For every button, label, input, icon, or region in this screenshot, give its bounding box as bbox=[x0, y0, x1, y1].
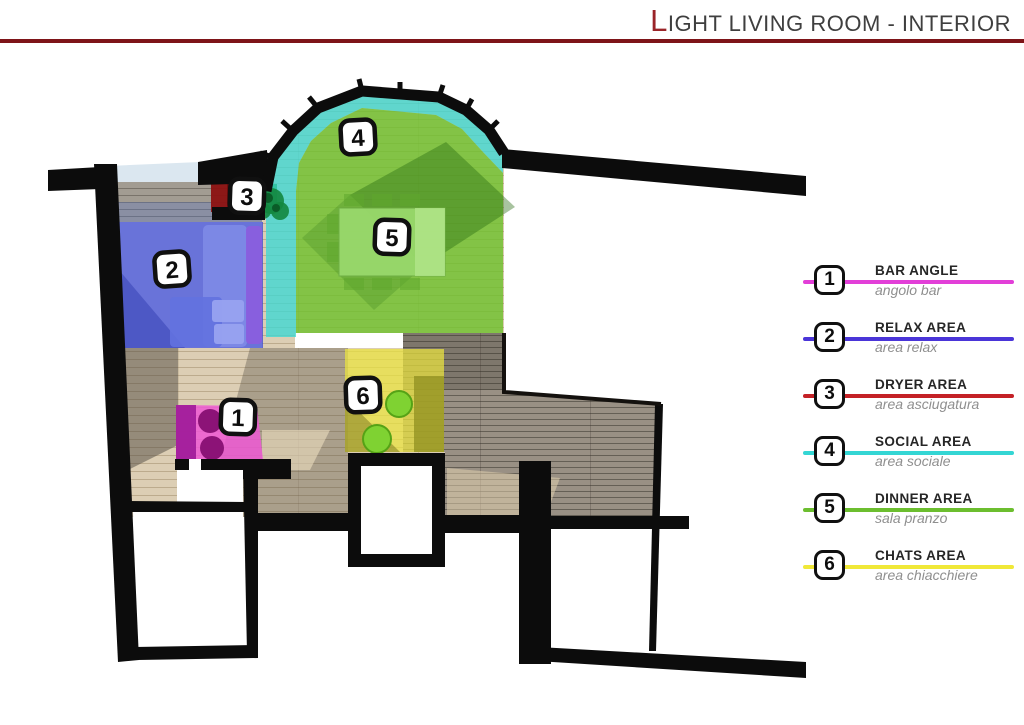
wall-segment bbox=[521, 646, 806, 678]
legend-sublabel: area sociale bbox=[875, 453, 1014, 469]
plan-badge-4: 4 bbox=[340, 119, 376, 155]
legend-badge: 2 bbox=[814, 322, 845, 352]
legend-sublabel: area relax bbox=[875, 339, 1014, 355]
wall-segment bbox=[502, 149, 806, 196]
svg-text:6: 6 bbox=[356, 383, 370, 410]
bar-stool bbox=[200, 436, 224, 460]
legend-item-dinner-area: 5 DINNER AREA sala pranzo bbox=[803, 490, 1014, 547]
legend-label: RELAX AREA bbox=[875, 320, 1014, 335]
bar-stool bbox=[198, 409, 222, 433]
legend-badge-num: 3 bbox=[824, 383, 835, 405]
wall-segment bbox=[443, 515, 525, 533]
legend-label: CHATS AREA bbox=[875, 548, 1014, 563]
legend-label: DINNER AREA bbox=[875, 491, 1014, 506]
legend-sublabel: area asciugatura bbox=[875, 396, 1014, 412]
legend-item-bar-angle: 1 BAR ANGLE angolo bar bbox=[803, 262, 1014, 319]
plan-badge-3: 3 bbox=[229, 178, 264, 213]
legend-item-chats-area: 6 CHATS AREA area chiacchiere bbox=[803, 547, 1014, 604]
pouf bbox=[363, 425, 391, 453]
svg-text:4: 4 bbox=[351, 125, 366, 153]
legend-badge: 3 bbox=[814, 379, 845, 409]
wall-segment bbox=[551, 516, 689, 529]
wall-segment bbox=[256, 513, 348, 531]
wall-segment bbox=[135, 645, 258, 660]
svg-text:5: 5 bbox=[385, 225, 399, 252]
legend-item-relax-area: 2 RELAX AREA area relax bbox=[803, 319, 1014, 376]
legend-label: DRYER AREA bbox=[875, 377, 1014, 392]
svg-text:2: 2 bbox=[164, 257, 179, 285]
plan-badge-1: 1 bbox=[220, 399, 255, 434]
wall-segment bbox=[48, 167, 100, 191]
legend-badge-num: 5 bbox=[824, 497, 835, 519]
pouf bbox=[386, 391, 412, 417]
wall-segment bbox=[519, 461, 551, 664]
plan-badge-2: 2 bbox=[154, 251, 190, 287]
wall-segment bbox=[243, 459, 258, 653]
sofa-arm bbox=[246, 226, 262, 344]
sofa-pillow bbox=[214, 324, 244, 344]
svg-text:1: 1 bbox=[231, 405, 245, 432]
legend-label: SOCIAL AREA bbox=[875, 434, 1014, 449]
plan-badge-5: 5 bbox=[374, 219, 409, 254]
legend-badge: 5 bbox=[814, 493, 845, 523]
legend-sublabel: angolo bar bbox=[875, 282, 1014, 298]
bench bbox=[414, 376, 444, 452]
legend-badge-num: 6 bbox=[824, 554, 835, 576]
legend-sublabel: area chiacchiere bbox=[875, 567, 1014, 583]
legend-badge-num: 4 bbox=[824, 440, 835, 462]
dining-table-highlight bbox=[415, 208, 445, 276]
svg-text:3: 3 bbox=[240, 184, 254, 211]
legend-item-social-area: 4 SOCIAL AREA area sociale bbox=[803, 433, 1014, 490]
sofa-pillow bbox=[212, 300, 244, 322]
stairwell-void bbox=[361, 466, 432, 554]
legend-badge: 4 bbox=[814, 436, 845, 466]
door-gap bbox=[189, 459, 201, 470]
terrace-edge bbox=[504, 333, 661, 404]
legend-sublabel: sala pranzo bbox=[875, 510, 1014, 526]
legend-item-dryer-area: 3 DRYER AREA area asciugatura bbox=[803, 376, 1014, 433]
bar-counter bbox=[176, 405, 196, 460]
legend-badge-num: 1 bbox=[824, 269, 835, 291]
legend-badge: 1 bbox=[814, 265, 845, 295]
legend-badge: 6 bbox=[814, 550, 845, 580]
legend-badge-num: 2 bbox=[824, 326, 835, 348]
legend: 1 BAR ANGLE angolo bar 2 RELAX AREA area… bbox=[803, 262, 1014, 604]
slide-canvas: LIGHT LIVING ROOM - INTERIOR bbox=[0, 0, 1024, 725]
plan-badge-6: 6 bbox=[345, 377, 380, 412]
area-relax bbox=[119, 222, 263, 348]
legend-label: BAR ANGLE bbox=[875, 263, 1014, 278]
wall-segment bbox=[120, 501, 247, 512]
